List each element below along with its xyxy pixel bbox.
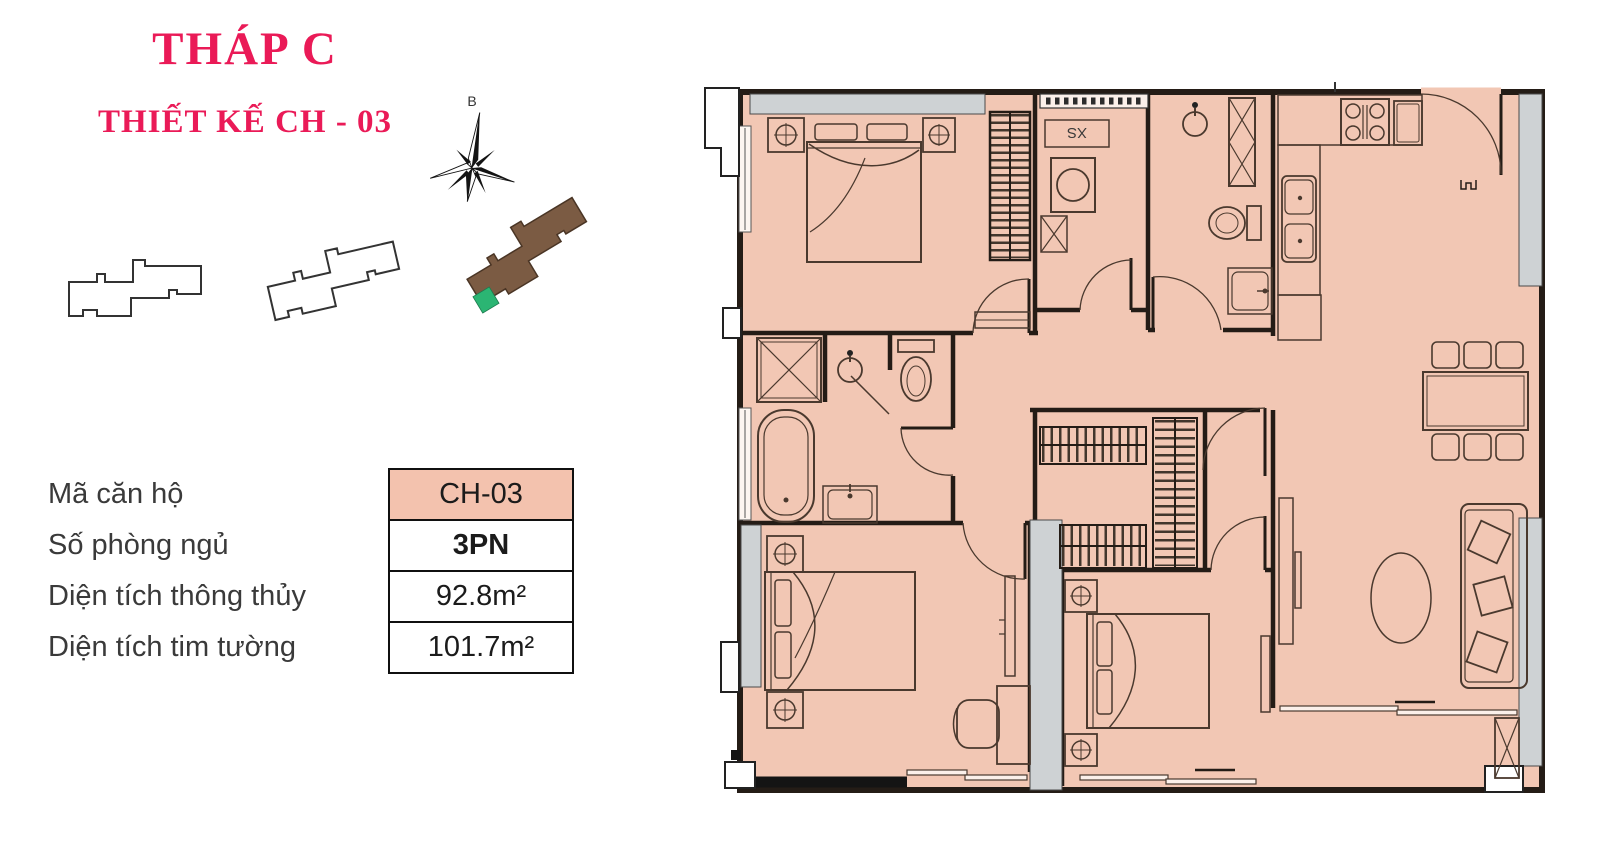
- page-subtitle: THIẾT KẾ CH - 03: [10, 104, 480, 141]
- brochure-page: THÁP C THIẾT KẾ CH - 03 B: [0, 0, 1600, 855]
- floor-plan: XS: [695, 80, 1555, 800]
- washer-shelf-label: XS: [1067, 124, 1087, 141]
- keyplan-tower-c-highlighted: [420, 192, 610, 337]
- table-row: Diện tích thông thủy 92.8m²: [48, 570, 588, 623]
- page-title: THÁP C: [20, 22, 470, 76]
- row-label: Mã căn hộ: [48, 468, 183, 521]
- bedroom-count-value: 3PN: [388, 519, 574, 572]
- table-row: Số phòng ngủ 3PN: [48, 519, 588, 572]
- pillow-icon: [1473, 576, 1512, 615]
- sliding-window-icon: [907, 770, 967, 775]
- sliding-door-icon: [1397, 710, 1517, 715]
- double-bed-icon: [1087, 614, 1209, 728]
- row-label: Diện tích thông thủy: [48, 570, 306, 623]
- row-label: Diện tích tim tường: [48, 621, 296, 674]
- keyplan-tower-middle: [238, 212, 423, 337]
- net-area-value: 92.8m²: [388, 570, 574, 623]
- sliding-door-icon: [1280, 706, 1398, 711]
- double-bed-icon: [765, 572, 915, 690]
- sliding-window-icon: [1166, 779, 1256, 784]
- table-row: Diện tích tim tường 101.7m²: [48, 621, 588, 674]
- sliding-window-icon: [1080, 775, 1168, 780]
- unit-info-table: Mã căn hộ CH-03 Số phòng ngủ 3PN Diện tí…: [48, 468, 588, 680]
- sliding-window-icon: [965, 775, 1027, 780]
- table-row: Mã căn hộ CH-03: [48, 468, 588, 521]
- keyplan-tower-left: [55, 224, 240, 344]
- gross-area-value: 101.7m²: [388, 621, 574, 674]
- row-label: Số phòng ngủ: [48, 519, 229, 572]
- unit-code-value: CH-03: [388, 468, 574, 521]
- compass-north-label: B: [467, 93, 476, 109]
